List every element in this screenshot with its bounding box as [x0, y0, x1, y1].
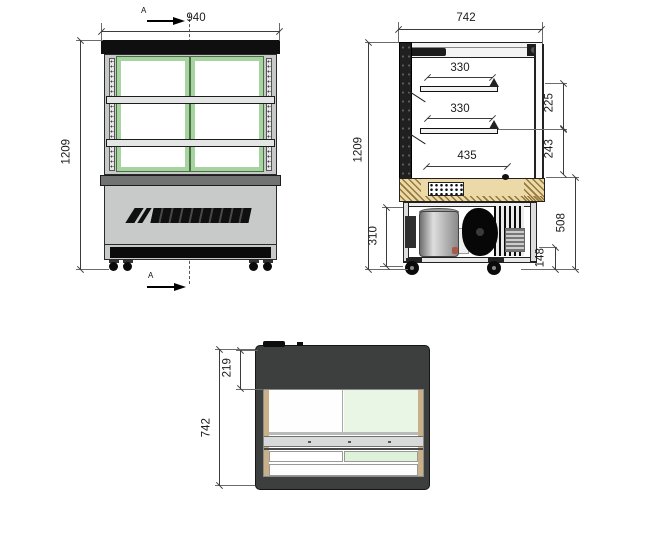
front-glass-pane-right	[191, 57, 263, 171]
side-machine-dimension-line	[386, 207, 387, 267]
side-deck-drain	[502, 174, 509, 180]
side-shelf-upper-dimension-line	[427, 77, 493, 78]
technical-drawing-canvas: 940 A A 1209 330 330 435	[0, 0, 669, 544]
side-depth-dimension-line	[398, 29, 542, 30]
side-height-ext-bottom	[365, 269, 408, 270]
front-counter-band	[100, 175, 281, 186]
side-shelf-lower-dimension-line	[427, 118, 493, 119]
side-right-block	[505, 228, 525, 252]
side-red-fitting	[452, 247, 458, 254]
side-shelf-lower-dimension-label: 330	[443, 104, 477, 116]
top-gasket-right	[418, 390, 423, 476]
front-section-marker-top-arrow-icon	[173, 17, 185, 25]
front-vent-grille	[150, 208, 251, 223]
side-machine-frame-bottom-rail	[403, 257, 537, 263]
front-height-dimension-line	[80, 40, 81, 270]
top-glass-left	[269, 390, 343, 433]
side-clearance-dimension-label: 148	[535, 236, 547, 280]
front-top-band	[101, 40, 280, 54]
front-section-marker-bottom-arrow-icon	[174, 283, 186, 291]
front-caster-4	[263, 262, 272, 271]
top-shelf-strip	[264, 436, 423, 447]
side-depth-dimension-label: 742	[444, 13, 488, 25]
front-height-dimension-label: 1209	[61, 130, 73, 174]
top-tray-left	[269, 451, 343, 462]
side-deck-hatch-bottom	[400, 196, 544, 201]
front-caster-3	[249, 262, 258, 271]
front-caster-2	[123, 262, 132, 271]
side-gap-upper-dimension-label: 225	[544, 81, 556, 125]
top-depth-dimension-line	[219, 349, 220, 486]
side-shelf-upper	[420, 86, 498, 92]
side-deck-grate	[428, 182, 464, 196]
front-shelf-upper	[106, 96, 275, 104]
top-hinge-tab	[263, 341, 285, 347]
top-glass-right	[344, 390, 418, 433]
side-shelf-lower-stopper	[489, 120, 499, 129]
top-depth-dimension-label: 742	[201, 406, 213, 450]
side-base-dimension-line	[575, 177, 576, 270]
side-clearance-ext-bottom	[521, 269, 579, 270]
top-shelf-dot-2	[348, 441, 351, 443]
front-width-dimension-line	[101, 31, 280, 32]
top-small-knob	[297, 342, 303, 346]
side-light-fixture	[408, 48, 446, 56]
side-gap-upper-dimension-line	[563, 83, 564, 129]
side-caster-rear-hub	[492, 266, 496, 270]
top-inset-dimension-label: 219	[222, 346, 234, 390]
side-machine-ext-bottom	[380, 266, 403, 267]
side-base-dimension-label: 508	[556, 201, 568, 245]
side-front-glass	[534, 44, 544, 186]
top-bottom-band	[269, 464, 418, 476]
front-section-marker-bottom-shaft	[147, 286, 175, 288]
front-caster-1	[109, 262, 118, 271]
side-depth-ext-left	[398, 22, 399, 42]
top-shelf-dot-3	[388, 441, 391, 443]
front-kick-inset	[110, 247, 271, 258]
side-caster-front-hub	[410, 266, 414, 270]
top-tray-right	[344, 451, 418, 462]
side-height-dimension-label: 1209	[353, 128, 365, 172]
side-deck-dimension-line	[426, 166, 508, 167]
side-gap-ext-shelf2	[498, 129, 567, 130]
front-glass-pane-left	[117, 57, 189, 171]
top-glass-edge	[269, 432, 418, 435]
front-section-marker-bottom-label: A	[148, 272, 153, 280]
side-machine-dimension-label: 310	[368, 214, 380, 258]
top-shelf-dot-1	[308, 441, 311, 443]
side-shelf-upper-dimension-label: 330	[443, 63, 477, 75]
front-shelf-standard-right	[266, 58, 272, 171]
top-divider-line	[264, 448, 423, 450]
side-back-panel	[399, 42, 412, 200]
side-clearance-dimension-line	[555, 247, 556, 270]
top-inset-dimension-line	[240, 350, 241, 389]
front-section-marker-top-label: A	[141, 7, 146, 15]
side-depth-ext-right	[542, 22, 543, 44]
front-shelf-lower	[106, 139, 275, 147]
front-section-marker-top-shaft	[147, 20, 174, 22]
side-gap-lower-dimension-label: 243	[544, 127, 556, 171]
side-electrical-panel	[405, 216, 416, 248]
side-shelf-lower	[420, 128, 498, 134]
side-deck-dimension-label: 435	[446, 151, 488, 163]
side-gap-lower-dimension-line	[563, 129, 564, 175]
side-fan-hub	[476, 228, 484, 236]
front-shelf-standard-left	[109, 58, 115, 171]
